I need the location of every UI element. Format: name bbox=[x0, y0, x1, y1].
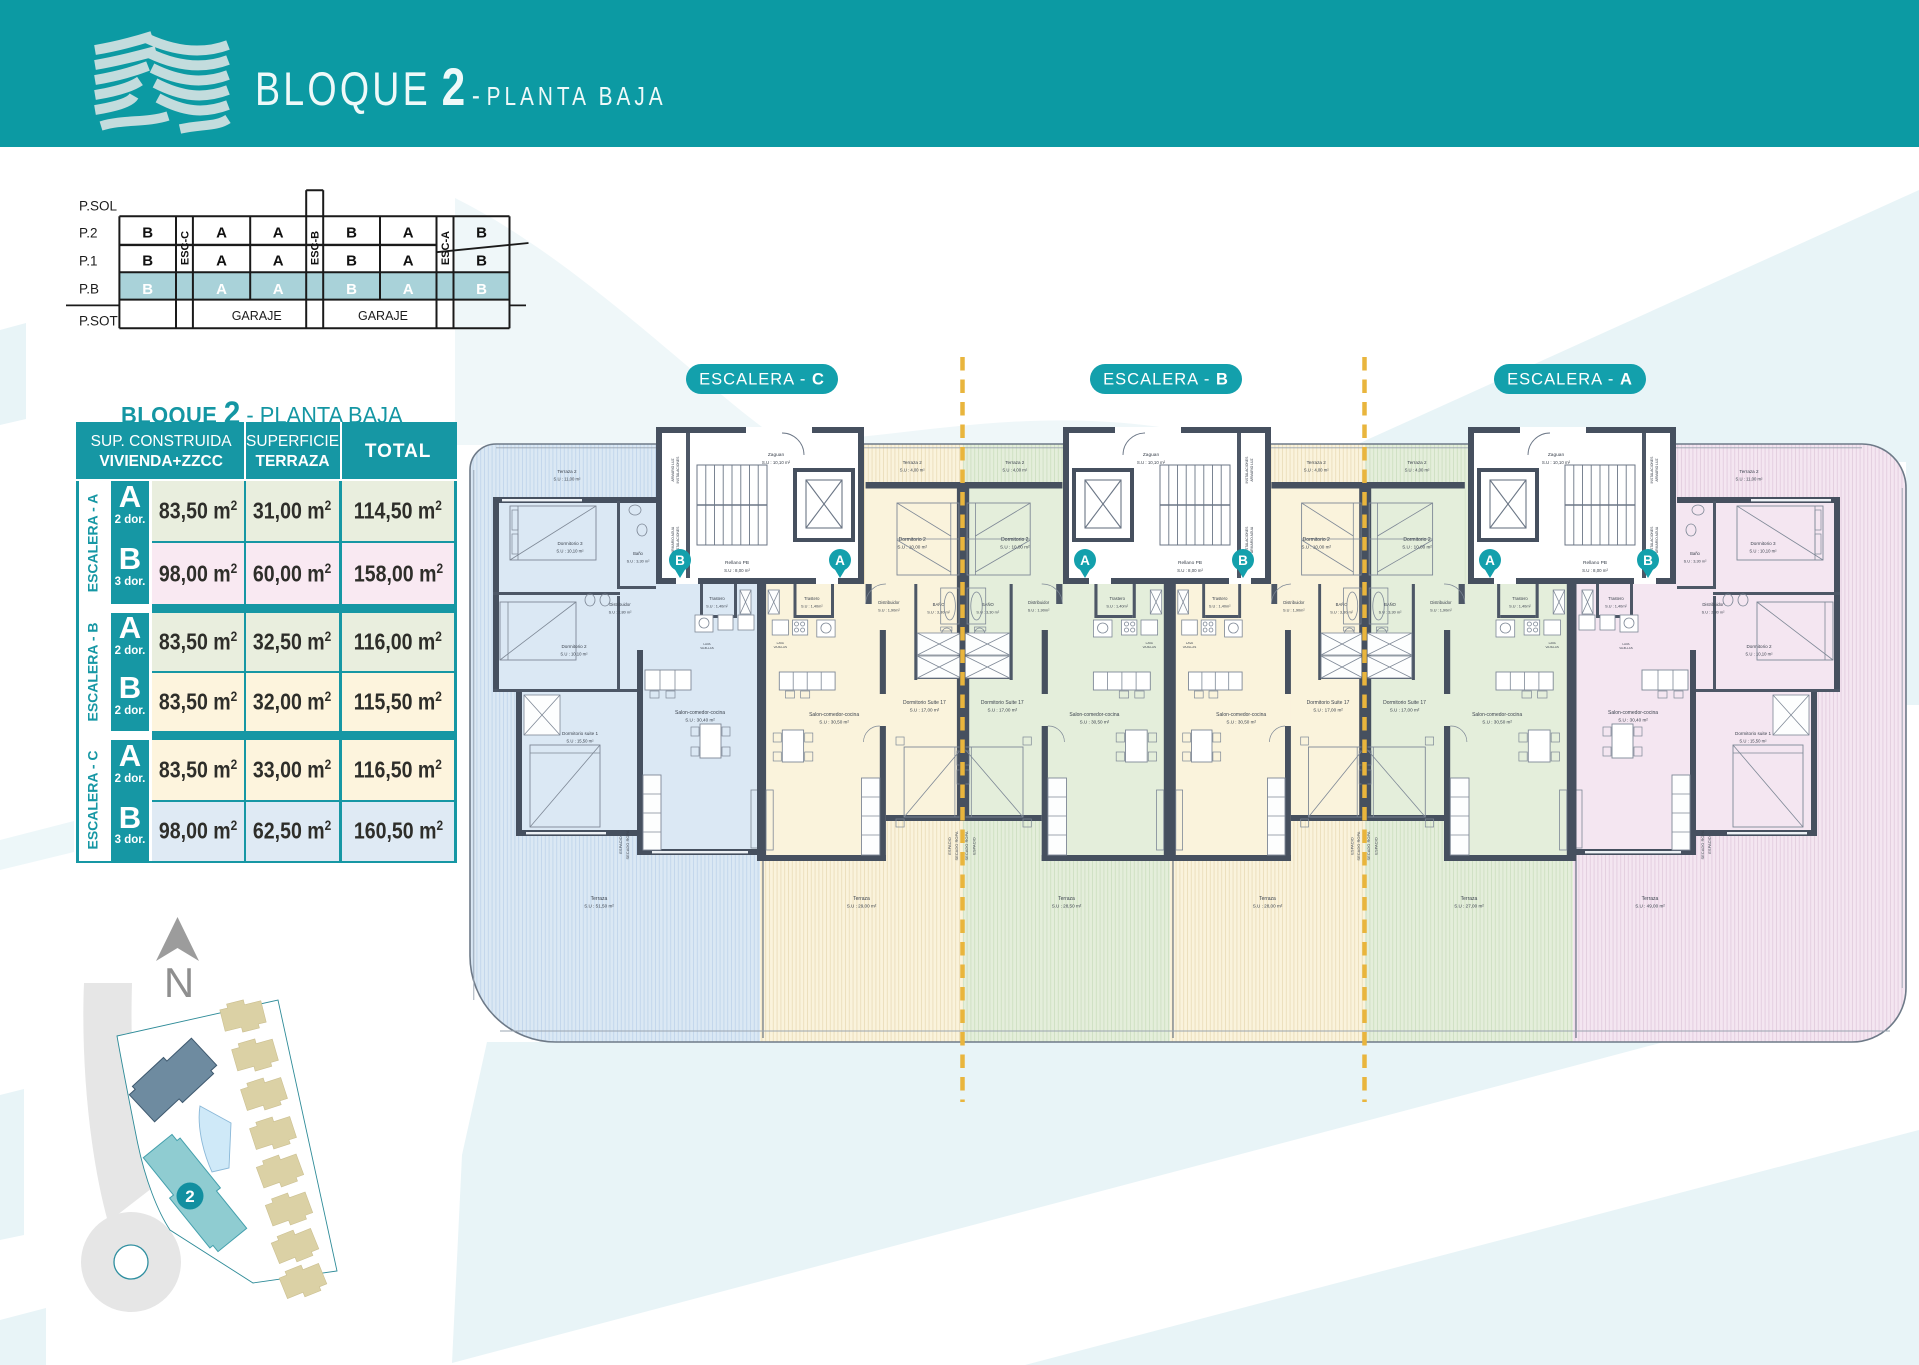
svg-text:Baño: Baño bbox=[633, 551, 643, 556]
svg-text:S.U : 11,00 m²: S.U : 11,00 m² bbox=[554, 477, 581, 482]
svg-text:S.U : 10,00 m²: S.U : 10,00 m² bbox=[1402, 545, 1432, 550]
svg-text:Dormitorio 2: Dormitorio 2 bbox=[1403, 537, 1430, 543]
svg-text:Terraza 2: Terraza 2 bbox=[557, 469, 577, 474]
svg-text:ESC-B: ESC-B bbox=[310, 231, 322, 265]
svg-text:Salon-comedor-cocina: Salon-comedor-cocina bbox=[1472, 712, 1522, 718]
svg-text:Terraza: Terraza bbox=[1058, 896, 1075, 902]
svg-text:Terraza: Terraza bbox=[1259, 896, 1276, 902]
svg-text:BAÑO: BAÑO bbox=[933, 602, 946, 607]
svg-text:A: A bbox=[1485, 553, 1495, 568]
svg-text:Trastero: Trastero bbox=[1109, 596, 1125, 601]
svg-text:Trastero: Trastero bbox=[1512, 596, 1528, 601]
svg-text:S.U : 8,00 m²: S.U : 8,00 m² bbox=[724, 568, 750, 573]
svg-text:B: B bbox=[142, 281, 153, 298]
svg-text:S.U : 27,00 m²: S.U : 27,00 m² bbox=[1454, 904, 1484, 909]
svg-text:ARMARIO LUZ: ARMARIO LUZ bbox=[1250, 458, 1254, 481]
svg-text:Terraza 2: Terraza 2 bbox=[1005, 460, 1025, 465]
svg-text:A: A bbox=[403, 253, 414, 270]
svg-text:S.U : 30,50 m²: S.U : 30,50 m² bbox=[1080, 720, 1110, 725]
svg-text:ESC-C: ESC-C bbox=[180, 231, 192, 265]
svg-text:Zaguan: Zaguan bbox=[768, 452, 785, 458]
svg-text:S.U : 28,00 m²: S.U : 28,00 m² bbox=[1253, 904, 1283, 909]
svg-text:A: A bbox=[273, 281, 284, 298]
svg-text:S.U : 3,30 m²: S.U : 3,30 m² bbox=[1330, 610, 1353, 615]
svg-text:ESCALERA - B: ESCALERA - B bbox=[1103, 371, 1229, 389]
svg-text:P.SOL: P.SOL bbox=[79, 199, 118, 214]
svg-text:SECADO ROPA: SECADO ROPA bbox=[964, 831, 969, 860]
svg-text:B: B bbox=[476, 225, 487, 242]
svg-text:ESPACIO: ESPACIO bbox=[971, 837, 976, 855]
svg-text:A: A bbox=[403, 281, 414, 298]
svg-text:Dormitorio 3: Dormitorio 3 bbox=[1750, 541, 1775, 546]
svg-text:S.U : 11,00 m²: S.U : 11,00 m² bbox=[1736, 477, 1763, 482]
svg-text:Dormitorio suite 1: Dormitorio suite 1 bbox=[1735, 731, 1771, 736]
svg-text:Zaguan: Zaguan bbox=[1143, 452, 1160, 458]
svg-text:S.U : 10,10 m²: S.U : 10,10 m² bbox=[560, 652, 588, 657]
svg-text:Dormitorio 2: Dormitorio 2 bbox=[1001, 537, 1028, 543]
svg-text:Dormitorio 3: Dormitorio 3 bbox=[557, 541, 582, 546]
svg-text:S.U : 1,90m²: S.U : 1,90m² bbox=[1283, 608, 1305, 613]
svg-text:P.B: P.B bbox=[79, 282, 99, 297]
svg-text:A: A bbox=[216, 281, 227, 298]
svg-text:A: A bbox=[835, 553, 845, 568]
svg-text:Dormitorio 2: Dormitorio 2 bbox=[561, 644, 586, 649]
svg-text:ESPACIO: ESPACIO bbox=[618, 836, 623, 854]
svg-text:B: B bbox=[346, 253, 357, 270]
svg-text:VAJILLAS: VAJILLAS bbox=[1619, 646, 1632, 650]
svg-text:BAÑO: BAÑO bbox=[1384, 602, 1397, 607]
svg-text:S.U : 4,00 m²: S.U : 4,00 m² bbox=[1405, 468, 1430, 473]
svg-text:B: B bbox=[1238, 553, 1248, 568]
svg-text:ARMARIO AGUA: ARMARIO AGUA bbox=[671, 526, 675, 553]
svg-text:S.U : 1,40m²: S.U : 1,40m² bbox=[706, 604, 728, 609]
svg-text:Terraza: Terraza bbox=[1642, 896, 1659, 902]
svg-text:ESC-A: ESC-A bbox=[440, 231, 452, 265]
svg-text:Terraza: Terraza bbox=[853, 896, 870, 902]
svg-text:Terraza: Terraza bbox=[591, 896, 608, 902]
svg-text:S.U : 30,50 m²: S.U : 30,50 m² bbox=[1226, 720, 1256, 725]
svg-text:Distribuidor: Distribuidor bbox=[878, 600, 900, 605]
svg-text:B: B bbox=[675, 553, 685, 568]
svg-text:ARMARIO LUZ: ARMARIO LUZ bbox=[671, 458, 675, 481]
svg-text:B: B bbox=[476, 281, 487, 298]
svg-text:A: A bbox=[216, 253, 227, 270]
svg-text:ESPACIO: ESPACIO bbox=[1707, 836, 1712, 854]
svg-text:S.U : 1,90m²: S.U : 1,90m² bbox=[1430, 608, 1452, 613]
svg-text:SECADO ROPA: SECADO ROPA bbox=[954, 831, 959, 860]
svg-text:S.U : 10,00 m²: S.U : 10,00 m² bbox=[1301, 545, 1331, 550]
svg-text:INSTALACIONES: INSTALACIONES bbox=[1245, 526, 1249, 554]
svg-text:Dormitorio Suite 17: Dormitorio Suite 17 bbox=[1307, 700, 1350, 706]
svg-text:Dormitorio Suite 17: Dormitorio Suite 17 bbox=[981, 700, 1024, 706]
svg-text:Rellano PB: Rellano PB bbox=[725, 560, 749, 566]
svg-text:VAJILLAS: VAJILLAS bbox=[1545, 645, 1558, 649]
svg-text:2: 2 bbox=[185, 1187, 194, 1206]
svg-text:S.U : 28,50 m²: S.U : 28,50 m² bbox=[1052, 904, 1082, 909]
svg-text:S.U : 1,90m²: S.U : 1,90m² bbox=[878, 608, 900, 613]
svg-text:S.U : 2,80 m²: S.U : 2,80 m² bbox=[1702, 610, 1725, 615]
svg-text:S.U : 10,10 m²: S.U : 10,10 m² bbox=[762, 460, 791, 465]
svg-text:ARMARIO AGUA: ARMARIO AGUA bbox=[1655, 526, 1659, 553]
svg-text:P.1: P.1 bbox=[79, 254, 98, 269]
svg-text:SECADO ROPA: SECADO ROPA bbox=[1356, 831, 1361, 860]
svg-text:Salon-comedor-cocina: Salon-comedor-cocina bbox=[1069, 712, 1119, 718]
svg-text:Zaguan: Zaguan bbox=[1548, 452, 1565, 458]
svg-text:BAÑO: BAÑO bbox=[1336, 602, 1349, 607]
svg-text:S.U : 10,10 m²: S.U : 10,10 m² bbox=[556, 549, 584, 554]
svg-text:Dormitorio 2: Dormitorio 2 bbox=[1746, 644, 1771, 649]
svg-text:A: A bbox=[273, 225, 284, 242]
svg-text:Terraza 2: Terraza 2 bbox=[1407, 460, 1427, 465]
svg-text:ESPACIO: ESPACIO bbox=[1349, 837, 1354, 855]
svg-text:Terraza 2: Terraza 2 bbox=[1307, 460, 1327, 465]
svg-text:Dormitorio suite 1: Dormitorio suite 1 bbox=[562, 731, 598, 736]
svg-text:S.U : 4,00 m²: S.U : 4,00 m² bbox=[1304, 468, 1329, 473]
svg-text:VAJILLAS: VAJILLAS bbox=[1143, 645, 1156, 649]
svg-text:Distribuidor: Distribuidor bbox=[1702, 602, 1724, 607]
svg-text:Dormitorio 2: Dormitorio 2 bbox=[1303, 537, 1330, 543]
svg-text:Salon-comedor-cocina: Salon-comedor-cocina bbox=[1608, 710, 1658, 716]
svg-text:Dormitorio Suite 17: Dormitorio Suite 17 bbox=[1383, 700, 1426, 706]
svg-text:S.U : 3,30 m²: S.U : 3,30 m² bbox=[976, 610, 999, 615]
svg-text:S.U : 8,00 m²: S.U : 8,00 m² bbox=[1177, 568, 1203, 573]
svg-text:INSTALACIONES: INSTALACIONES bbox=[1245, 456, 1249, 484]
svg-text:S.U : 15,50 m²: S.U : 15,50 m² bbox=[1739, 739, 1767, 744]
svg-text:GARAJE: GARAJE bbox=[358, 309, 408, 323]
svg-text:SECADO ROPA: SECADO ROPA bbox=[625, 830, 630, 859]
svg-text:Rellano PB: Rellano PB bbox=[1583, 560, 1607, 566]
svg-text:P.2: P.2 bbox=[79, 226, 98, 241]
svg-text:Salon-comedor-cocina: Salon-comedor-cocina bbox=[675, 710, 725, 716]
svg-text:ARMARIO LUZ: ARMARIO LUZ bbox=[1655, 458, 1659, 481]
svg-text:A: A bbox=[1080, 553, 1090, 568]
svg-text:S.U : 4,00 m²: S.U : 4,00 m² bbox=[900, 468, 925, 473]
svg-text:S.U : 3,30 m²: S.U : 3,30 m² bbox=[627, 559, 650, 564]
svg-text:Salon-comedor-cocina: Salon-comedor-cocina bbox=[1216, 712, 1266, 718]
svg-text:Trastero: Trastero bbox=[1212, 596, 1228, 601]
svg-text:S.U : 17,00 m²: S.U : 17,00 m² bbox=[1313, 708, 1343, 713]
svg-text:S.U : 10,10 m²: S.U : 10,10 m² bbox=[1137, 460, 1166, 465]
svg-text:S.U : 1,40m²: S.U : 1,40m² bbox=[1209, 604, 1231, 609]
svg-text:B: B bbox=[142, 253, 153, 270]
svg-text:VAJILLAS: VAJILLAS bbox=[774, 645, 787, 649]
svg-text:B: B bbox=[142, 225, 153, 242]
svg-text:S.U : 10,00 m²: S.U : 10,00 m² bbox=[897, 545, 927, 550]
svg-text:S.U : 1,40m²: S.U : 1,40m² bbox=[1509, 604, 1531, 609]
svg-text:Terraza: Terraza bbox=[1461, 896, 1478, 902]
svg-text:SECADO ROPA: SECADO ROPA bbox=[1366, 831, 1371, 860]
svg-text:S.U : 30,50 m²: S.U : 30,50 m² bbox=[1482, 720, 1512, 725]
svg-text:Baño: Baño bbox=[1690, 551, 1700, 556]
svg-text:S.U : 8,00 m²: S.U : 8,00 m² bbox=[1582, 568, 1608, 573]
svg-text:P.SOT: P.SOT bbox=[79, 314, 118, 329]
svg-text:B: B bbox=[1643, 553, 1653, 568]
svg-text:S.U : 1,90m²: S.U : 1,90m² bbox=[1028, 608, 1050, 613]
svg-text:Distribuidor: Distribuidor bbox=[609, 602, 631, 607]
svg-text:S.U : 49,00 m²: S.U : 49,00 m² bbox=[1635, 904, 1665, 909]
svg-text:S.U : 10,10 m²: S.U : 10,10 m² bbox=[1745, 652, 1773, 657]
svg-text:S.U : 3,30 m²: S.U : 3,30 m² bbox=[1684, 559, 1707, 564]
svg-text:Trastero: Trastero bbox=[709, 596, 725, 601]
svg-text:Salon-comedor-cocina: Salon-comedor-cocina bbox=[809, 712, 859, 718]
svg-text:ESCALERA - A: ESCALERA - A bbox=[1507, 371, 1633, 389]
svg-text:S.U : 51,50 m²: S.U : 51,50 m² bbox=[584, 904, 614, 909]
svg-text:Trastero: Trastero bbox=[1608, 596, 1624, 601]
svg-text:S.U : 29,00 m²: S.U : 29,00 m² bbox=[847, 904, 877, 909]
svg-text:S.U : 1,40m²: S.U : 1,40m² bbox=[1106, 604, 1128, 609]
svg-text:S.U : 10,00 m²: S.U : 10,00 m² bbox=[1000, 545, 1030, 550]
svg-text:ESPACIO: ESPACIO bbox=[947, 837, 952, 855]
svg-text:B: B bbox=[346, 281, 357, 298]
svg-text:S.U : 17,00 m²: S.U : 17,00 m² bbox=[910, 708, 940, 713]
svg-text:ESPACIO: ESPACIO bbox=[1373, 837, 1378, 855]
svg-text:B: B bbox=[346, 225, 357, 242]
svg-text:A: A bbox=[403, 225, 414, 242]
svg-text:Distribuidor: Distribuidor bbox=[1028, 600, 1050, 605]
svg-text:S.U : 15,50 m²: S.U : 15,50 m² bbox=[566, 739, 594, 744]
svg-text:Dormitorio Suite 17: Dormitorio Suite 17 bbox=[903, 700, 946, 706]
svg-text:N: N bbox=[164, 959, 194, 1006]
svg-text:B: B bbox=[476, 253, 487, 270]
svg-text:Terraza 2: Terraza 2 bbox=[1739, 469, 1759, 474]
svg-text:S.U : 4,00 m²: S.U : 4,00 m² bbox=[1002, 468, 1027, 473]
svg-text:Terraza 2: Terraza 2 bbox=[903, 460, 923, 465]
svg-text:S.U : 30,50 m²: S.U : 30,50 m² bbox=[819, 720, 849, 725]
svg-text:VAJILLAS: VAJILLAS bbox=[1183, 645, 1196, 649]
svg-text:S.U : 2,80 m²: S.U : 2,80 m² bbox=[609, 610, 632, 615]
svg-text:S.U : 30,40 m²: S.U : 30,40 m² bbox=[685, 718, 715, 723]
svg-text:Distribuidor: Distribuidor bbox=[1283, 600, 1305, 605]
svg-text:INSTALACIONES: INSTALACIONES bbox=[676, 456, 680, 484]
svg-text:INSTALACIONES: INSTALACIONES bbox=[1650, 456, 1654, 484]
svg-text:Trastero: Trastero bbox=[804, 596, 820, 601]
svg-text:VAJILLAS: VAJILLAS bbox=[700, 646, 713, 650]
svg-text:ARMARIO AGUA: ARMARIO AGUA bbox=[1250, 526, 1254, 553]
svg-text:Rellano PB: Rellano PB bbox=[1178, 560, 1202, 566]
svg-text:S.U : 1,40m²: S.U : 1,40m² bbox=[1605, 604, 1627, 609]
svg-text:BAÑO: BAÑO bbox=[982, 602, 995, 607]
svg-text:S.U : 1,40m²: S.U : 1,40m² bbox=[801, 604, 823, 609]
svg-text:ESCALERA - C: ESCALERA - C bbox=[699, 371, 825, 389]
svg-text:S.U : 10,10 m²: S.U : 10,10 m² bbox=[1542, 460, 1571, 465]
svg-text:Distribuidor: Distribuidor bbox=[1430, 600, 1452, 605]
svg-text:A: A bbox=[273, 253, 284, 270]
svg-text:Dormitorio 2: Dormitorio 2 bbox=[899, 537, 926, 543]
svg-text:S.U : 10,10 m²: S.U : 10,10 m² bbox=[1749, 549, 1777, 554]
svg-text:S.U : 17,00 m²: S.U : 17,00 m² bbox=[987, 708, 1017, 713]
svg-text:A: A bbox=[216, 225, 227, 242]
svg-text:GARAJE: GARAJE bbox=[232, 309, 282, 323]
svg-text:S.U : 30,40 m²: S.U : 30,40 m² bbox=[1618, 718, 1648, 723]
svg-text:S.U : 17,00 m²: S.U : 17,00 m² bbox=[1390, 708, 1420, 713]
svg-text:S.U : 3,30 m²: S.U : 3,30 m² bbox=[1379, 610, 1402, 615]
svg-text:INSTALACIONES: INSTALACIONES bbox=[1650, 526, 1654, 554]
svg-text:S.U : 3,30 m²: S.U : 3,30 m² bbox=[927, 610, 950, 615]
svg-text:SECADO ROPA: SECADO ROPA bbox=[1700, 830, 1705, 859]
